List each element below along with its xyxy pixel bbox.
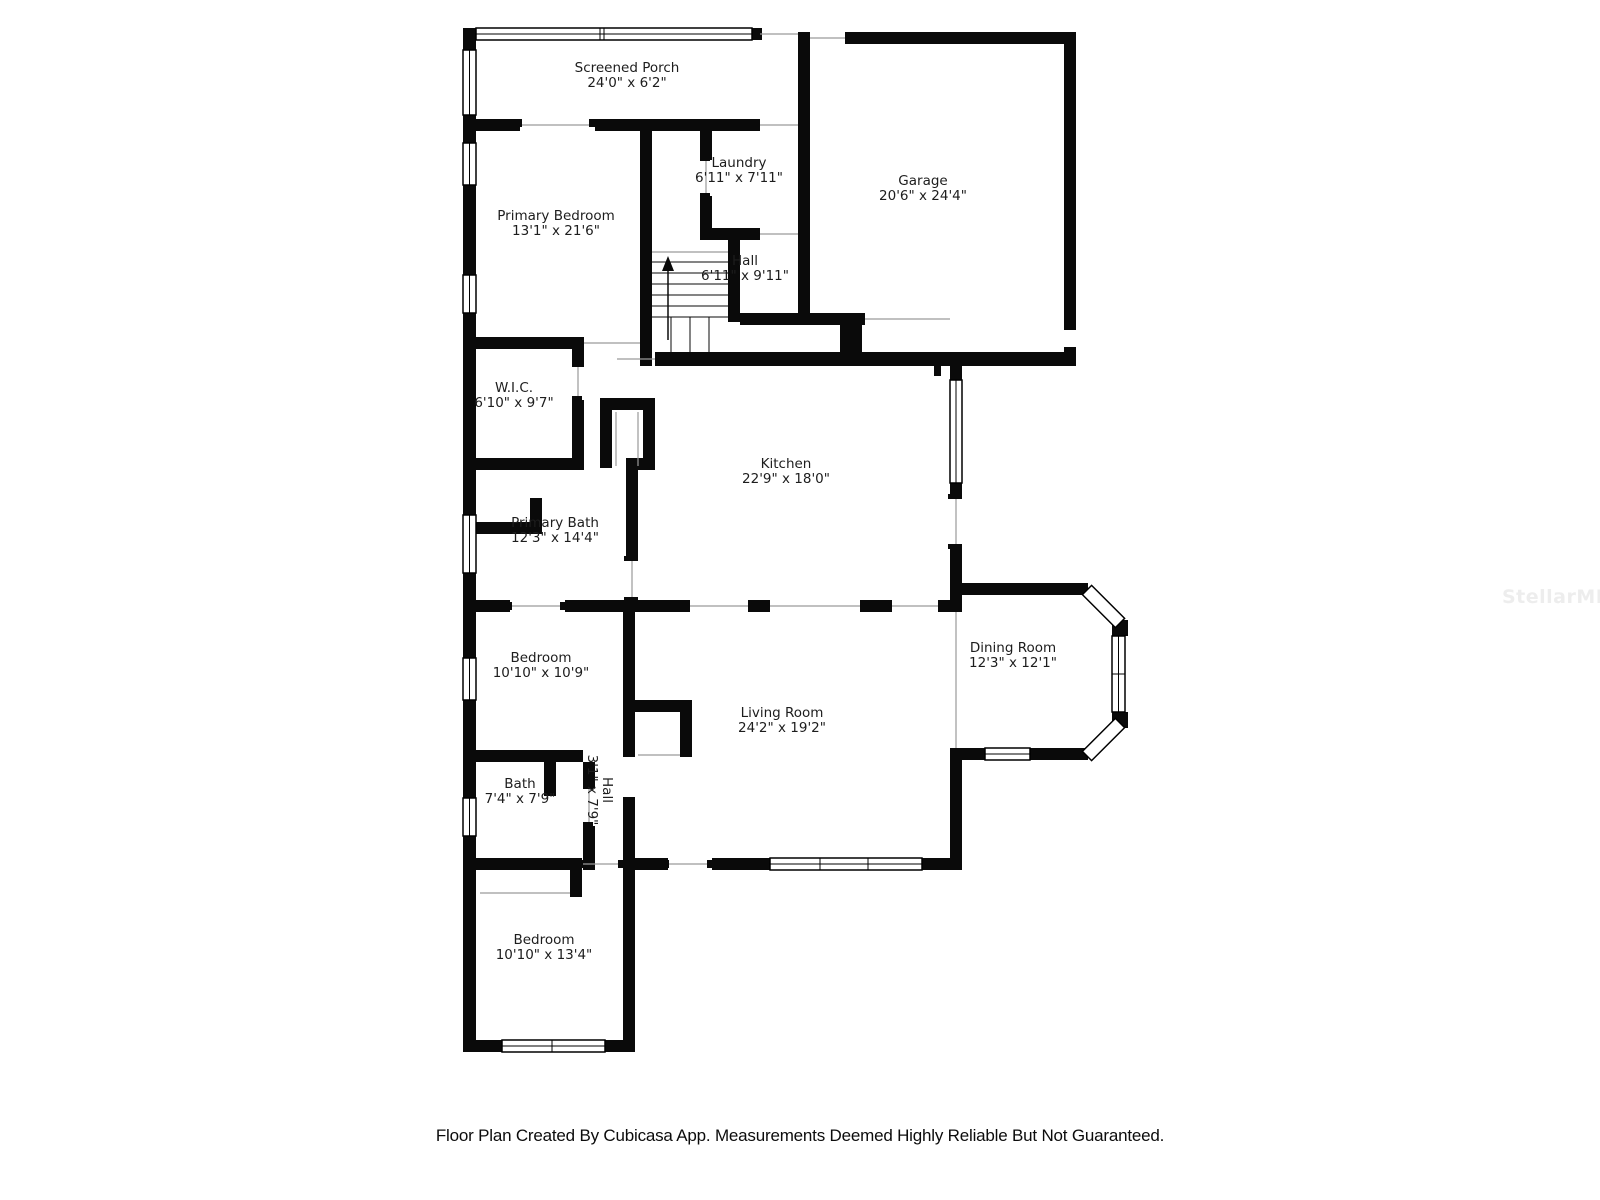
wall <box>1030 748 1088 760</box>
wall <box>950 748 985 760</box>
wall <box>950 748 962 870</box>
room-dimensions: 6'10" x 9'7" <box>474 395 553 411</box>
room-label-dining-room: Dining Room12'3" x 12'1" <box>969 640 1057 671</box>
room-name: Bath <box>504 776 535 792</box>
wall <box>623 612 635 757</box>
room-label-kitchen: Kitchen22'9" x 18'0" <box>742 456 830 487</box>
wall <box>463 858 578 870</box>
room-name: Bedroom <box>510 650 571 666</box>
room-labels: Screened Porch24'0" x 6'2"Laundry6'11" x… <box>474 60 1057 963</box>
room-name: Hall <box>732 253 758 269</box>
room-label-primary-bath: Primary Bath12'3" x 14'4" <box>511 515 599 546</box>
room-label-wic: W.I.C.6'10" x 9'7" <box>474 380 553 411</box>
wall <box>845 32 1076 44</box>
wall <box>950 583 1088 595</box>
room-name: Bedroom <box>513 932 574 948</box>
room-label-bedroom-bottom: Bedroom10'10" x 13'4" <box>496 932 593 963</box>
wall <box>463 458 584 470</box>
floor-plan-drawing: Screened Porch24'0" x 6'2"Laundry6'11" x… <box>0 0 1600 1200</box>
wall <box>1064 32 1076 330</box>
wall <box>463 119 520 131</box>
wall <box>922 858 962 870</box>
room-name: Dining Room <box>970 640 1056 656</box>
wall <box>463 600 510 612</box>
wall <box>700 131 712 160</box>
room-dimensions: 6'11" x 9'11" <box>701 268 789 284</box>
wall <box>605 1040 635 1052</box>
wall <box>640 131 652 366</box>
room-dimensions: 10'10" x 10'9" <box>493 665 590 681</box>
wall <box>600 398 655 410</box>
room-name: Primary Bath <box>511 515 599 531</box>
room-dimensions: 3'1" x 7'9" <box>584 755 600 826</box>
room-name: Garage <box>898 173 947 189</box>
room-label-hall-lower: Hall3'1" x 7'9" <box>584 755 615 826</box>
footer-disclaimer: Floor Plan Created By Cubicasa App. Meas… <box>0 1126 1600 1146</box>
room-dimensions: 24'2" x 19'2" <box>738 720 826 736</box>
room-name: W.I.C. <box>495 380 533 396</box>
room-name: Laundry <box>711 155 766 171</box>
room-dimensions: 13'1" x 21'6" <box>512 223 600 239</box>
room-label-screened-porch: Screened Porch24'0" x 6'2" <box>575 60 680 91</box>
wall <box>700 119 760 131</box>
wall <box>623 797 635 1052</box>
wall <box>463 185 476 275</box>
room-dimensions: 12'3" x 14'4" <box>511 530 599 546</box>
wall <box>544 750 556 796</box>
room-dimensions: 24'0" x 6'2" <box>587 75 666 91</box>
wall <box>712 858 770 870</box>
wall <box>840 325 862 352</box>
wall <box>748 600 770 612</box>
wall <box>463 573 476 658</box>
room-name: Living Room <box>741 705 824 721</box>
room-label-living-room: Living Room24'2" x 19'2" <box>738 705 826 736</box>
room-dimensions: 22'9" x 18'0" <box>742 471 830 487</box>
room-label-primary-bedroom: Primary Bedroom13'1" x 21'6" <box>497 208 615 239</box>
wall <box>463 313 476 515</box>
wall <box>860 600 892 612</box>
room-dimensions: 20'6" x 24'4" <box>879 188 967 204</box>
wall <box>680 700 692 757</box>
wall <box>463 700 476 798</box>
stellar-mls-watermark: StellarMLS <box>1502 586 1600 608</box>
wall <box>600 410 612 468</box>
wall <box>950 548 962 612</box>
wall <box>623 858 668 870</box>
bay-window-lower <box>1082 718 1124 760</box>
bay-window-upper <box>1082 585 1124 627</box>
wall <box>463 1040 502 1052</box>
room-dimensions: 7'4" x 7'9" <box>485 791 556 807</box>
wall <box>798 32 810 315</box>
wall <box>626 458 655 470</box>
room-name: Screened Porch <box>575 60 680 76</box>
wall <box>626 470 638 560</box>
room-dimensions: 10'10" x 13'4" <box>496 947 593 963</box>
room-label-hall-upper: Hall6'11" x 9'11" <box>701 253 789 284</box>
room-name: Primary Bedroom <box>497 208 615 224</box>
wall <box>655 352 1076 366</box>
room-dimensions: 6'11" x 7'11" <box>695 170 783 186</box>
floor-plan-page: Screened Porch24'0" x 6'2"Laundry6'11" x… <box>0 0 1600 1200</box>
stairs-up-arrow-head <box>662 256 674 271</box>
room-dimensions: 12'3" x 12'1" <box>969 655 1057 671</box>
wall <box>740 313 865 325</box>
room-label-bedroom-middle: Bedroom10'10" x 10'9" <box>493 650 590 681</box>
wall <box>463 750 583 762</box>
room-label-garage: Garage20'6" x 24'4" <box>879 173 967 204</box>
wall <box>463 28 476 50</box>
wall <box>476 337 584 349</box>
room-name: Kitchen <box>761 456 812 472</box>
room-name: Hall <box>599 777 615 803</box>
